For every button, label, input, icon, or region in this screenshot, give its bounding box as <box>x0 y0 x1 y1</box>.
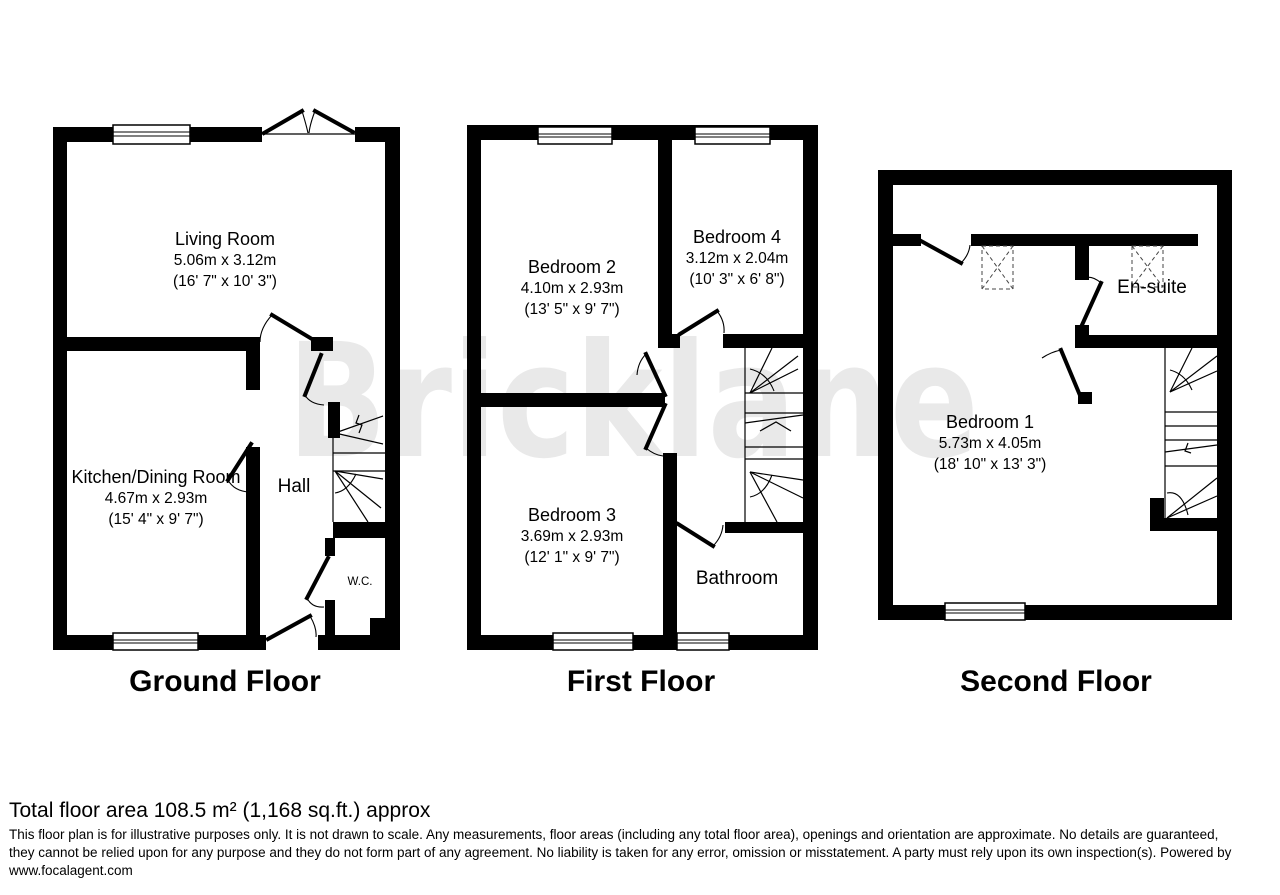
second-floor-plan <box>870 160 1240 630</box>
room-dim-imperial: (16' 7" x 10' 3") <box>173 271 277 292</box>
room-label-living-room: Living Room 5.06m x 3.12m (16' 7" x 10' … <box>173 228 277 292</box>
room-label-bedroom-2: Bedroom 2 4.10m x 2.93m (13' 5" x 9' 7") <box>521 256 624 320</box>
staircase-icon <box>333 415 385 522</box>
room-dim-metric: 3.69m x 2.93m <box>521 526 624 547</box>
room-label-kitchen-dining: Kitchen/Dining Room 4.67m x 2.93m (15' 4… <box>71 466 241 530</box>
caption-ground-floor: Ground Floor <box>129 665 321 699</box>
disclaimer-line: This floor plan is for illustrative purp… <box>9 826 1231 844</box>
room-name: Living Room <box>173 228 277 250</box>
room-dim-imperial: (10' 3" x 6' 8") <box>686 269 789 290</box>
room-dim-imperial: (18' 10" x 13' 3") <box>934 454 1047 475</box>
room-name: Bedroom 2 <box>521 256 624 278</box>
room-name: Bathroom <box>696 568 778 589</box>
caption-second-floor: Second Floor <box>960 665 1152 699</box>
floorplan-page: Bricklane <box>0 0 1280 895</box>
room-dim-metric: 3.12m x 2.04m <box>686 248 789 269</box>
room-name: W.C. <box>348 572 373 593</box>
room-label-bedroom-4: Bedroom 4 3.12m x 2.04m (10' 3" x 6' 8") <box>686 226 789 290</box>
room-label-bathroom: Bathroom <box>696 568 778 589</box>
room-name: Kitchen/Dining Room <box>71 466 241 488</box>
room-dim-metric: 5.06m x 3.12m <box>173 250 277 271</box>
room-label-wc: W.C. <box>348 572 373 593</box>
french-doors-icon <box>262 111 355 134</box>
room-dim-imperial: (15' 4" x 9' 7") <box>71 509 241 530</box>
room-dim-metric: 4.10m x 2.93m <box>521 278 624 299</box>
second-floor-windows <box>945 603 1025 620</box>
room-name: Bedroom 3 <box>521 504 624 526</box>
second-floor-walls <box>878 170 1232 620</box>
room-dim-imperial: (13' 5" x 9' 7") <box>521 299 624 320</box>
room-dim-metric: 4.67m x 2.93m <box>71 488 241 509</box>
staircase-icon <box>745 348 803 522</box>
first-floor-doors <box>637 311 724 546</box>
second-floor-doors <box>921 241 1101 393</box>
caption-first-floor: First Floor <box>567 665 715 699</box>
room-label-bedroom-3: Bedroom 3 3.69m x 2.93m (12' 1" x 9' 7") <box>521 504 624 568</box>
disclaimer-line: www.focalagent.com <box>9 862 1231 880</box>
room-dim-imperial: (12' 1" x 9' 7") <box>521 547 624 568</box>
disclaimer-line: they cannot be relied upon for any purpo… <box>9 844 1231 862</box>
room-name: En-suite <box>1117 277 1187 298</box>
staircase-icon <box>1165 348 1217 518</box>
room-label-en-suite: En-suite <box>1117 277 1187 298</box>
room-dim-metric: 5.73m x 4.05m <box>934 433 1047 454</box>
room-name: Hall <box>278 476 311 497</box>
room-label-bedroom-1: Bedroom 1 5.73m x 4.05m (18' 10" x 13' 3… <box>934 411 1047 475</box>
room-label-hall: Hall <box>278 476 311 497</box>
ground-floor-windows <box>113 125 198 650</box>
room-name: Bedroom 1 <box>934 411 1047 433</box>
room-name: Bedroom 4 <box>686 226 789 248</box>
total-floor-area: Total floor area 108.5 m² (1,168 sq.ft.)… <box>9 799 430 823</box>
disclaimer: This floor plan is for illustrative purp… <box>9 826 1231 880</box>
